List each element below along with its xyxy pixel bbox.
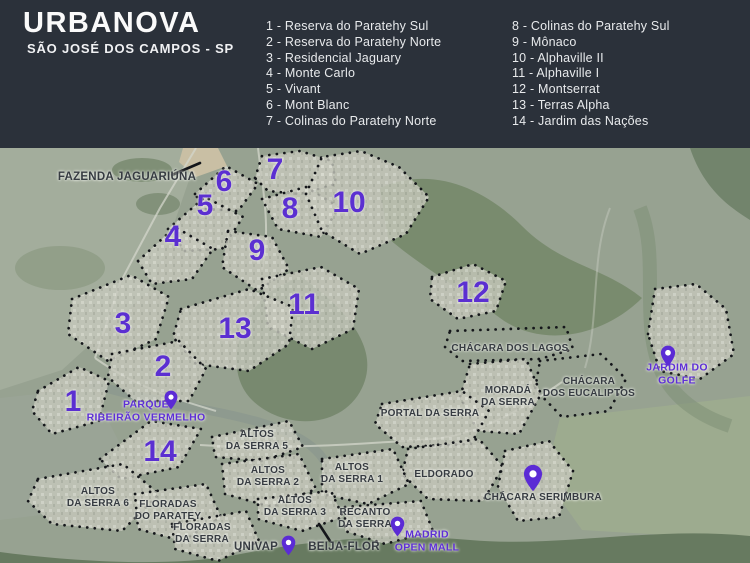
map-label-chacara-dos-lagos: CHÁCARA DOS LAGOS	[451, 343, 568, 355]
page-subtitle: SÃO JOSÉ DOS CAMPOS - SP	[27, 41, 234, 56]
map-label-jardim-do-golfe: JARDIM DO GOLFE	[641, 361, 714, 386]
map-label-altos-da-serra-6: ALTOS DA SERRA 6	[67, 486, 129, 510]
legend-item: 4 - Monte Carlo	[266, 66, 441, 82]
map-number-4: 4	[165, 222, 182, 252]
map-label-morada-da-serra: MORADÁ DA SERRA	[481, 385, 535, 409]
legend-item: 1 - Reserva do Paratehy Sul	[266, 19, 441, 35]
map-label-parque-ribeirao-vermelho: PARQUE RIBEIRÃO VERMELHO	[87, 398, 206, 423]
map-number-8: 8	[282, 194, 299, 224]
map-label-beija-flor: BEIJA-FLOR	[308, 541, 380, 555]
map-label-chacara-serimbura: CHÁCARA SERIMBURA	[484, 492, 602, 504]
urbanova-map-flyer: URBANOVA SÃO JOSÉ DOS CAMPOS - SP 1 - Re…	[0, 0, 750, 563]
header: URBANOVA SÃO JOSÉ DOS CAMPOS - SP 1 - Re…	[0, 0, 750, 148]
map-number-3: 3	[115, 309, 132, 339]
legend-item: 7 - Colinas do Paratehy Norte	[266, 114, 441, 130]
map-label-floradas-da-serra: FLORADAS DA SERRA	[173, 522, 231, 546]
map-label-chacara-dos-eucaliptos: CHÁCARA DOS EUCALIPTOS	[543, 376, 635, 400]
map-label-altos-da-serra-2: ALTOS DA SERRA 2	[237, 465, 299, 489]
legend-item: 11 - Alphaville I	[512, 66, 670, 82]
map-number-12: 12	[456, 278, 489, 308]
legend-item: 3 - Residencial Jaguary	[266, 51, 441, 67]
map-number-1: 1	[65, 387, 82, 417]
map-number-14: 14	[143, 437, 176, 467]
map-label-portal-da-serra: PORTAL DA SERRA	[381, 408, 480, 420]
map-label-recanto-da-serra: RECANTO DA SERRA	[338, 507, 392, 531]
map-number-6: 6	[216, 167, 233, 197]
map-label-altos-da-serra-5: ALTOS DA SERRA 5	[226, 429, 288, 453]
map-number-5: 5	[197, 191, 214, 221]
map-number-11: 11	[288, 290, 320, 320]
map-number-7: 7	[267, 155, 284, 185]
legend-column-2: 8 - Colinas do Paratehy Sul 9 - Mônaco 1…	[512, 19, 670, 130]
map-label-fazenda-jaguariuna: FAZENDA JAGUARIÚNA	[58, 171, 196, 185]
map-number-2: 2	[155, 352, 172, 382]
legend-item: 14 - Jardim das Nações	[512, 114, 670, 130]
legend-item: 9 - Mônaco	[512, 35, 670, 51]
legend-item: 2 - Reserva do Paratehy Norte	[266, 35, 441, 51]
map-number-13: 13	[218, 314, 251, 344]
legend-item: 8 - Colinas do Paratehy Sul	[512, 19, 670, 35]
map-number-9: 9	[249, 236, 266, 266]
map-label-univap: UNIVAP	[234, 541, 278, 555]
map-area: 1 2 3 4 5 6 7 8 9 10 11 12 13 14 FAZENDA…	[0, 148, 750, 563]
legend-item: 13 - Terras Alpha	[512, 98, 670, 114]
legend-item: 12 - Montserrat	[512, 82, 670, 98]
legend-item: 6 - Mont Blanc	[266, 98, 441, 114]
map-label-altos-da-serra-1: ALTOS DA SERRA 1	[321, 462, 383, 486]
map-label-eldorado: ELDORADO	[414, 469, 473, 481]
legend-item: 5 - Vivant	[266, 82, 441, 98]
legend-column-1: 1 - Reserva do Paratehy Sul 2 - Reserva …	[266, 19, 441, 130]
map-number-10: 10	[332, 188, 365, 218]
legend-item: 10 - Alphaville II	[512, 51, 670, 67]
map-label-altos-da-serra-3: ALTOS DA SERRA 3	[264, 495, 326, 519]
map-label-floradas-do-paratey: FLORADAS DO PARATEY	[135, 499, 202, 523]
page-title: URBANOVA	[23, 7, 200, 40]
